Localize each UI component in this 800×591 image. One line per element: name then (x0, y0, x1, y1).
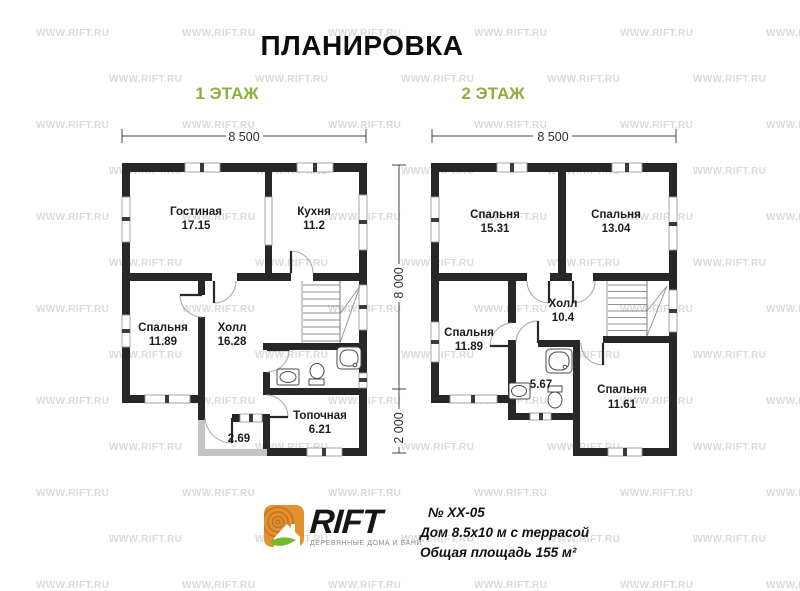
room-label-living: Гостиная (170, 206, 222, 218)
floor1-plan: Гостиная 17.15 Кухня 11.2 Спальня 11.89 … (122, 163, 367, 456)
room-label-hall1: Холл (218, 322, 247, 334)
floorplan-page: WWW.RIFT.RUWWW.RIFT.RUWWW.RIFT.RUWWW.RIF… (0, 0, 800, 591)
room-area-bedroom1f: 11.89 (149, 336, 177, 348)
room-label-bedroom2: Спальня (591, 209, 641, 221)
floor1-label: 1 ЭТАЖ (195, 84, 258, 104)
floor1-width-dim: 8 500 (228, 130, 259, 144)
room-label-boiler: Топочная (293, 410, 347, 422)
project-number: № XX-05 (420, 503, 589, 523)
room-area-hall1: 16.28 (218, 336, 247, 348)
room-area-bathroom: 5.67 (530, 379, 552, 391)
room-area-bedroom4: 11.61 (608, 399, 637, 411)
toilet-icon (309, 379, 324, 385)
room-label-bedroom4: Спальня (597, 384, 647, 396)
floorplan-drawing: 8 500 8 500 8 000 2 000 (0, 0, 800, 591)
room-area-hall2: 10.4 (552, 312, 575, 324)
project-total-area: Общая площадь 155 м² (420, 543, 589, 563)
height-ext-dim: 2 000 (392, 412, 406, 443)
room-label-bedroom1f: Спальня (138, 322, 188, 334)
floor2-stairs (607, 281, 667, 336)
project-info: № XX-05 Дом 8.5x10 м с террасой Общая пл… (420, 503, 589, 563)
room-label-kitchen: Кухня (297, 206, 331, 218)
brand-name: RIFT (309, 504, 424, 540)
page-title: ПЛАНИРОВКА (261, 30, 464, 62)
project-description: Дом 8.5x10 м с террасой (420, 523, 589, 543)
room-area-living: 17.15 (182, 220, 211, 232)
room-label-bedroom1: Спальня (470, 209, 520, 221)
room-area-bedroom3: 11.89 (455, 341, 483, 353)
floor2-room-labels: Спальня 15.31 Спальня 13.04 Спальня 11.8… (444, 209, 647, 411)
height-main-dim: 8 000 (392, 267, 406, 298)
floor1-room-labels: Гостиная 17.15 Кухня 11.2 Спальня 11.89 … (138, 206, 347, 445)
room-area-bedroom2: 13.04 (602, 223, 631, 235)
floor2-label: 2 ЭТАЖ (461, 84, 524, 104)
room-label-bedroom3: Спальня (444, 327, 494, 339)
room-label-hall2: Холл (549, 298, 578, 310)
brand-tagline: ДЕРЕВЯННЫЕ ДОМА И БАНИ (310, 540, 422, 547)
floor2-plan: Спальня 15.31 Спальня 13.04 Спальня 11.8… (431, 163, 677, 456)
floor1-stairs (302, 281, 360, 343)
room-area-entry: 2.69 (228, 433, 250, 445)
room-area-bedroom1: 15.31 (481, 223, 510, 235)
rift-logo-icon (264, 504, 304, 548)
floor2-width-dim: 8 500 (537, 130, 568, 144)
room-area-kitchen: 11.2 (303, 220, 325, 232)
footer-brand-block: RIFT ДЕРЕВЯННЫЕ ДОМА И БАНИ (264, 504, 422, 548)
room-area-boiler: 6.21 (309, 424, 332, 436)
floor1-fixtures (277, 347, 361, 385)
